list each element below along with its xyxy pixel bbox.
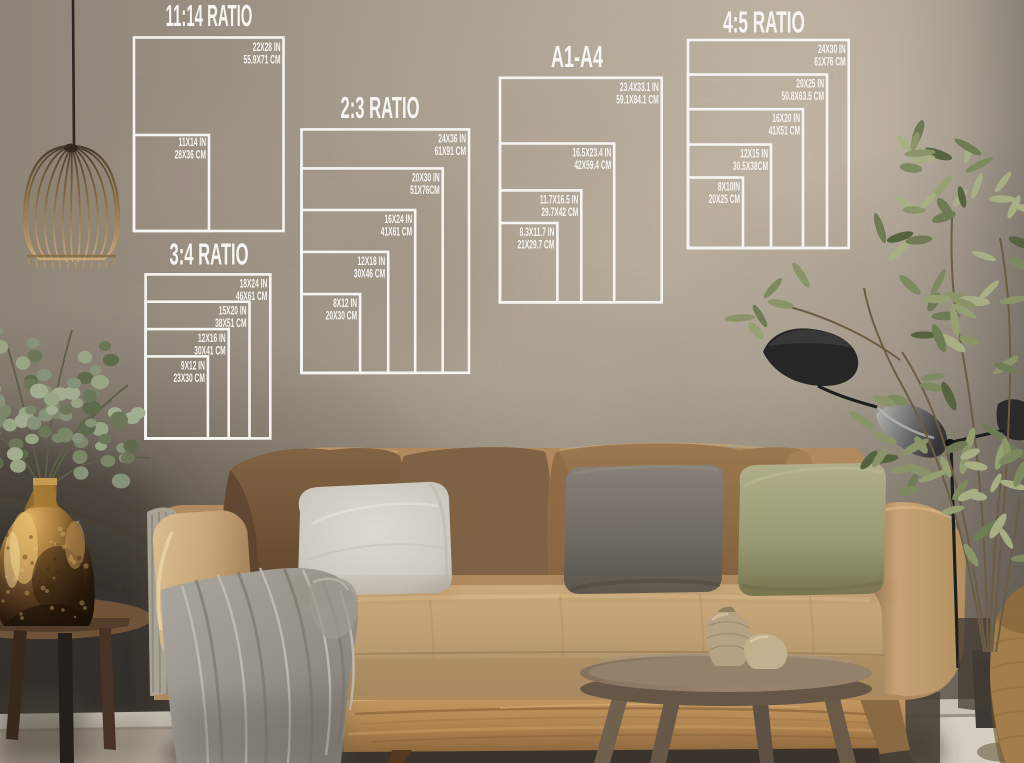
svg-text:20X25 CM: 20X25 CM [709,193,740,207]
svg-text:50.8X63.5 CM: 50.8X63.5 CM [781,90,824,104]
svg-text:30.5X38CM: 30.5X38CM [733,160,768,174]
svg-text:59.1X84.1 CM: 59.1X84.1 CM [616,93,659,107]
svg-text:A1-A4: A1-A4 [551,40,603,74]
svg-text:41X51 CM: 41X51 CM [769,125,800,139]
svg-text:21X29.7 CM: 21X29.7 CM [517,239,554,253]
svg-text:2:3 RATIO: 2:3 RATIO [341,91,420,126]
svg-text:46X61 CM: 46X61 CM [236,290,267,304]
svg-text:30X46 CM: 30X46 CM [354,268,385,282]
svg-text:3:4 RATIO: 3:4 RATIO [170,237,249,272]
svg-text:29.7X42 CM: 29.7X42 CM [541,206,578,220]
svg-text:42X59.4 CM: 42X59.4 CM [574,159,611,173]
svg-text:23X30 CM: 23X30 CM [173,372,204,386]
svg-text:28X36 CM: 28X36 CM [175,149,206,163]
svg-text:11:14 RATIO: 11:14 RATIO [166,0,253,34]
svg-text:38X51 CM: 38X51 CM [215,317,246,331]
svg-text:20X30 CM: 20X30 CM [326,310,357,324]
svg-text:41X61 CM: 41X61 CM [381,226,412,240]
svg-text:30X41 CM: 30X41 CM [194,345,225,359]
svg-text:4:5 RATIO: 4:5 RATIO [723,5,805,40]
svg-text:61X76 CM: 61X76 CM [814,56,845,70]
svg-text:61X91 CM: 61X91 CM [435,145,466,159]
svg-text:55.9X71 CM: 55.9X71 CM [244,54,281,68]
svg-text:51X76CM: 51X76CM [410,184,440,198]
